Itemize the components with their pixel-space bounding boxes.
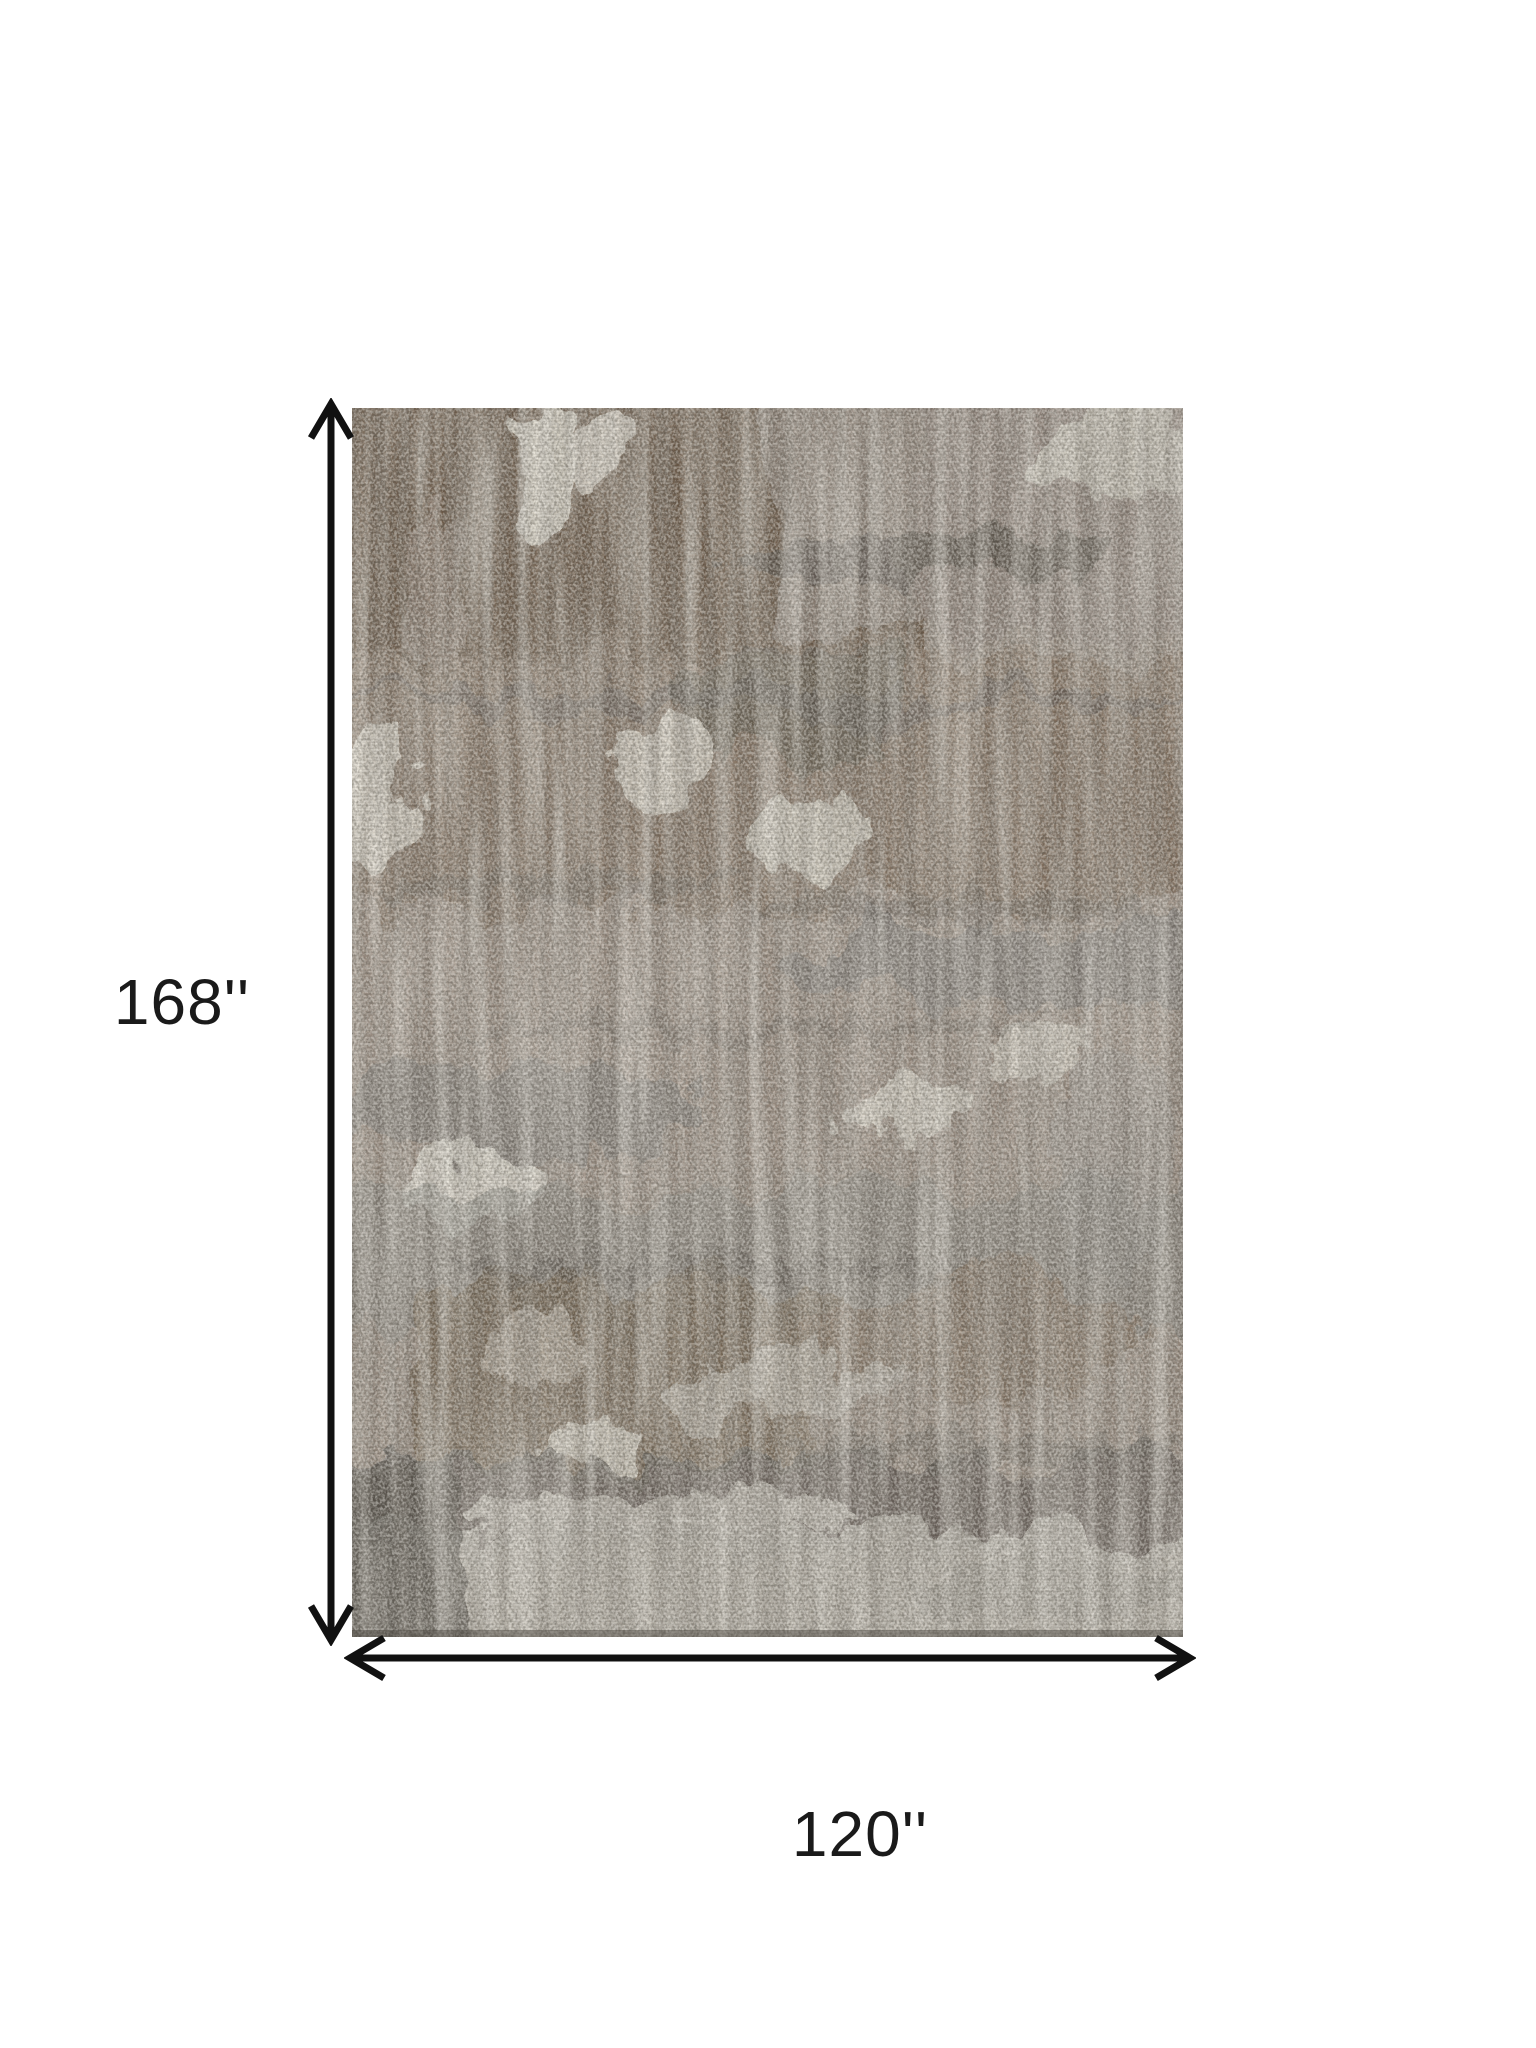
rug-photo xyxy=(352,408,1183,1637)
rug-dimension-diagram: 168'' 120'' xyxy=(0,0,1536,2048)
width-dimension-label: 120'' xyxy=(740,1796,980,1872)
height-dimension-arrow xyxy=(301,398,361,1646)
height-dimension-label: 168'' xyxy=(62,964,302,1040)
rug-texture xyxy=(352,408,1183,1637)
width-dimension-arrow xyxy=(344,1628,1196,1688)
